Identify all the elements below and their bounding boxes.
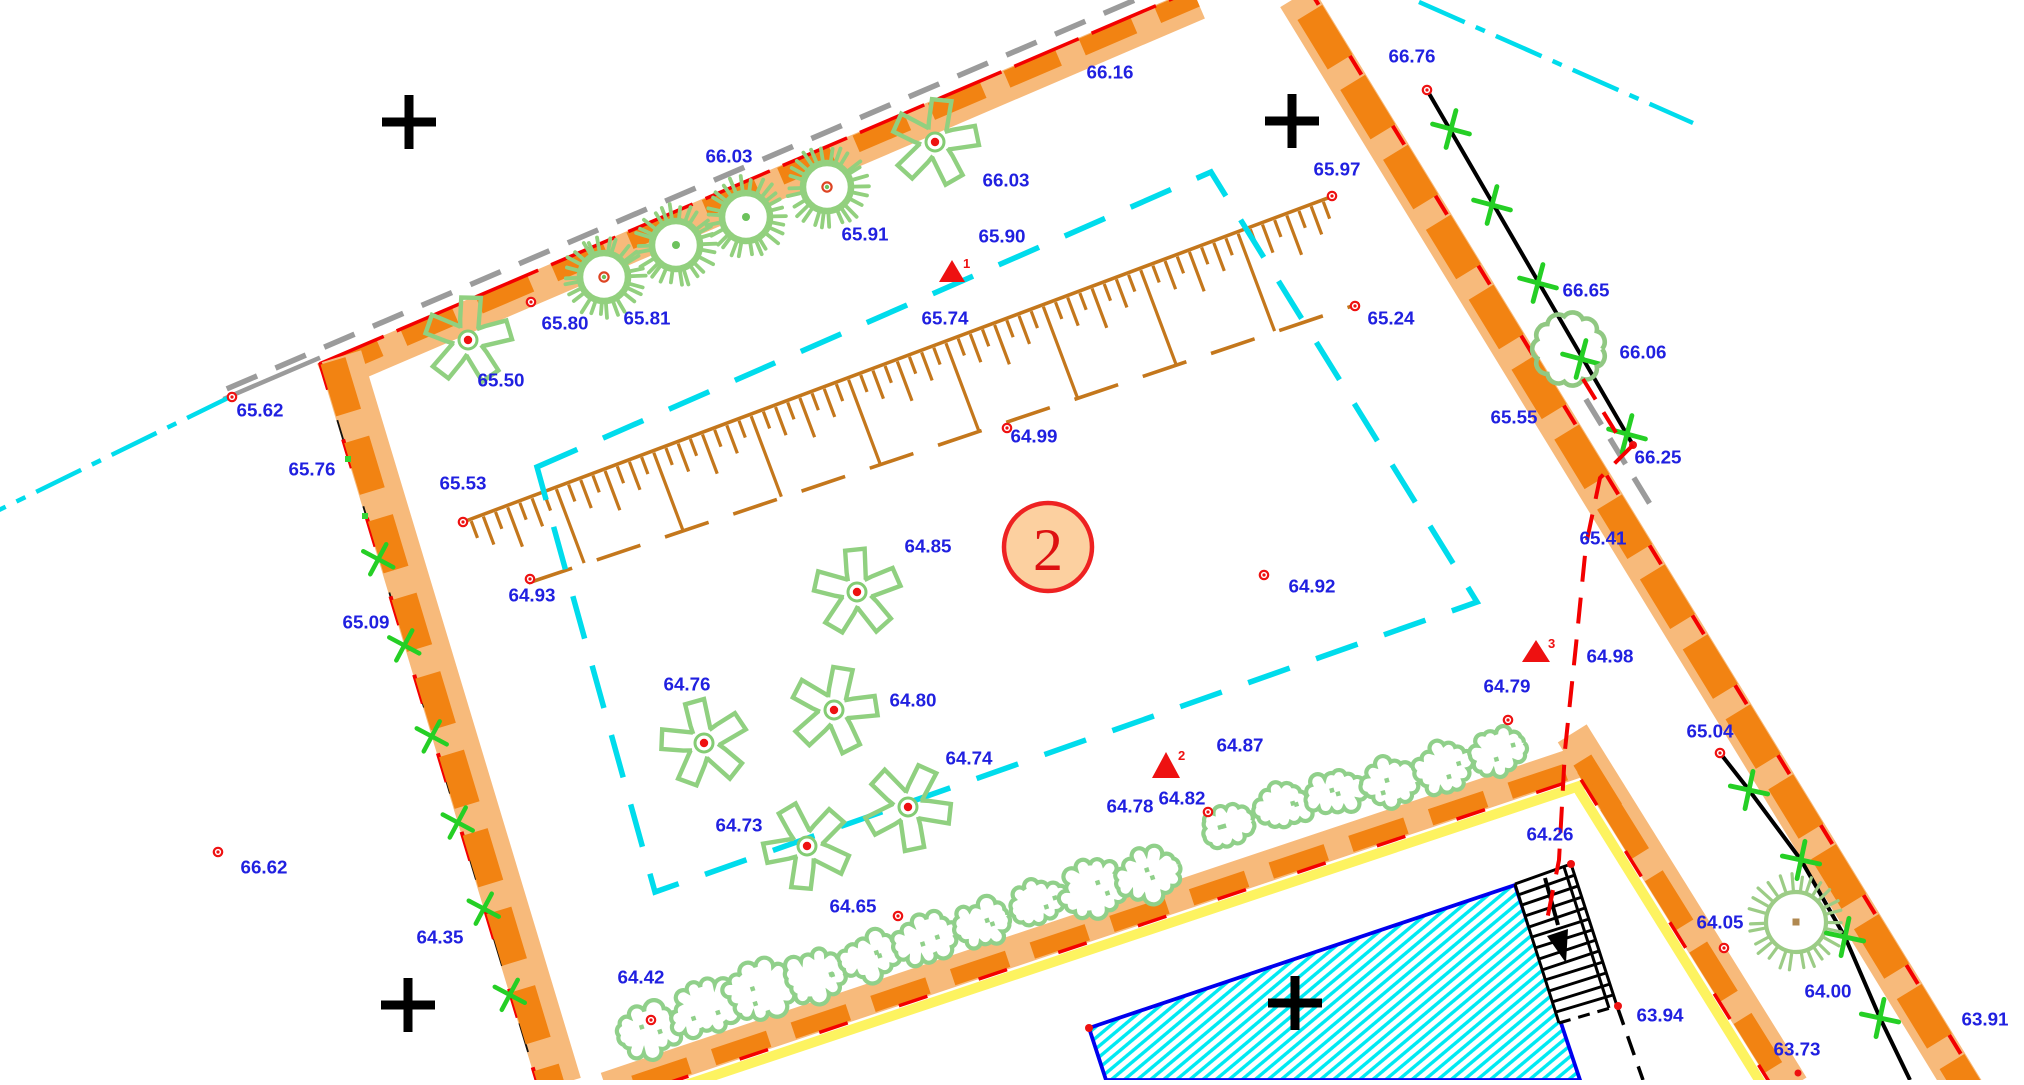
svg-text:63.94: 63.94 xyxy=(1637,1005,1685,1026)
svg-text:65.81: 65.81 xyxy=(624,308,671,329)
svg-text:65.24: 65.24 xyxy=(1368,308,1416,329)
svg-text:64.87: 64.87 xyxy=(1217,735,1264,756)
svg-text:64.42: 64.42 xyxy=(618,967,665,988)
svg-text:64.99: 64.99 xyxy=(1011,426,1058,447)
svg-text:65.55: 65.55 xyxy=(1491,407,1538,428)
svg-text:65.74: 65.74 xyxy=(922,308,970,329)
svg-text:66.03: 66.03 xyxy=(706,146,753,167)
svg-text:64.26: 64.26 xyxy=(1527,824,1574,845)
svg-text:66.03: 66.03 xyxy=(983,170,1030,191)
svg-text:64.73: 64.73 xyxy=(716,815,763,836)
svg-text:64.79: 64.79 xyxy=(1484,676,1531,697)
svg-text:2: 2 xyxy=(1178,748,1185,763)
svg-text:64.85: 64.85 xyxy=(905,536,952,557)
svg-text:66.25: 66.25 xyxy=(1635,447,1682,468)
svg-text:1: 1 xyxy=(963,256,970,271)
svg-text:66.62: 66.62 xyxy=(241,857,288,878)
svg-text:64.00: 64.00 xyxy=(1805,981,1852,1002)
svg-text:65.41: 65.41 xyxy=(1580,528,1627,549)
svg-text:65.80: 65.80 xyxy=(542,313,589,334)
svg-text:64.74: 64.74 xyxy=(946,748,994,769)
svg-text:65.62: 65.62 xyxy=(237,400,284,421)
svg-text:64.93: 64.93 xyxy=(509,585,556,606)
svg-text:65.76: 65.76 xyxy=(289,459,336,480)
svg-text:66.16: 66.16 xyxy=(1087,62,1134,83)
svg-text:64.80: 64.80 xyxy=(890,690,937,711)
svg-text:64.92: 64.92 xyxy=(1289,576,1336,597)
svg-text:65.53: 65.53 xyxy=(440,473,487,494)
svg-text:64.05: 64.05 xyxy=(1697,912,1744,933)
svg-text:3: 3 xyxy=(1548,636,1555,651)
svg-text:64.82: 64.82 xyxy=(1159,788,1206,809)
svg-text:64.98: 64.98 xyxy=(1587,646,1634,667)
svg-text:65.09: 65.09 xyxy=(343,612,390,633)
svg-text:65.97: 65.97 xyxy=(1314,159,1361,180)
svg-text:63.73: 63.73 xyxy=(1774,1039,1821,1060)
svg-text:66.06: 66.06 xyxy=(1620,342,1667,363)
svg-text:2: 2 xyxy=(1033,517,1063,583)
svg-text:66.65: 66.65 xyxy=(1563,280,1610,301)
svg-text:65.90: 65.90 xyxy=(979,226,1026,247)
svg-text:65.91: 65.91 xyxy=(842,224,889,245)
svg-text:63.91: 63.91 xyxy=(1962,1009,2009,1030)
svg-text:65.04: 65.04 xyxy=(1687,721,1735,742)
svg-text:64.65: 64.65 xyxy=(830,896,877,917)
svg-text:66.76: 66.76 xyxy=(1389,46,1436,67)
svg-text:65.50: 65.50 xyxy=(478,370,525,391)
svg-text:64.78: 64.78 xyxy=(1107,796,1154,817)
svg-text:64.76: 64.76 xyxy=(664,674,711,695)
svg-text:64.35: 64.35 xyxy=(417,927,464,948)
